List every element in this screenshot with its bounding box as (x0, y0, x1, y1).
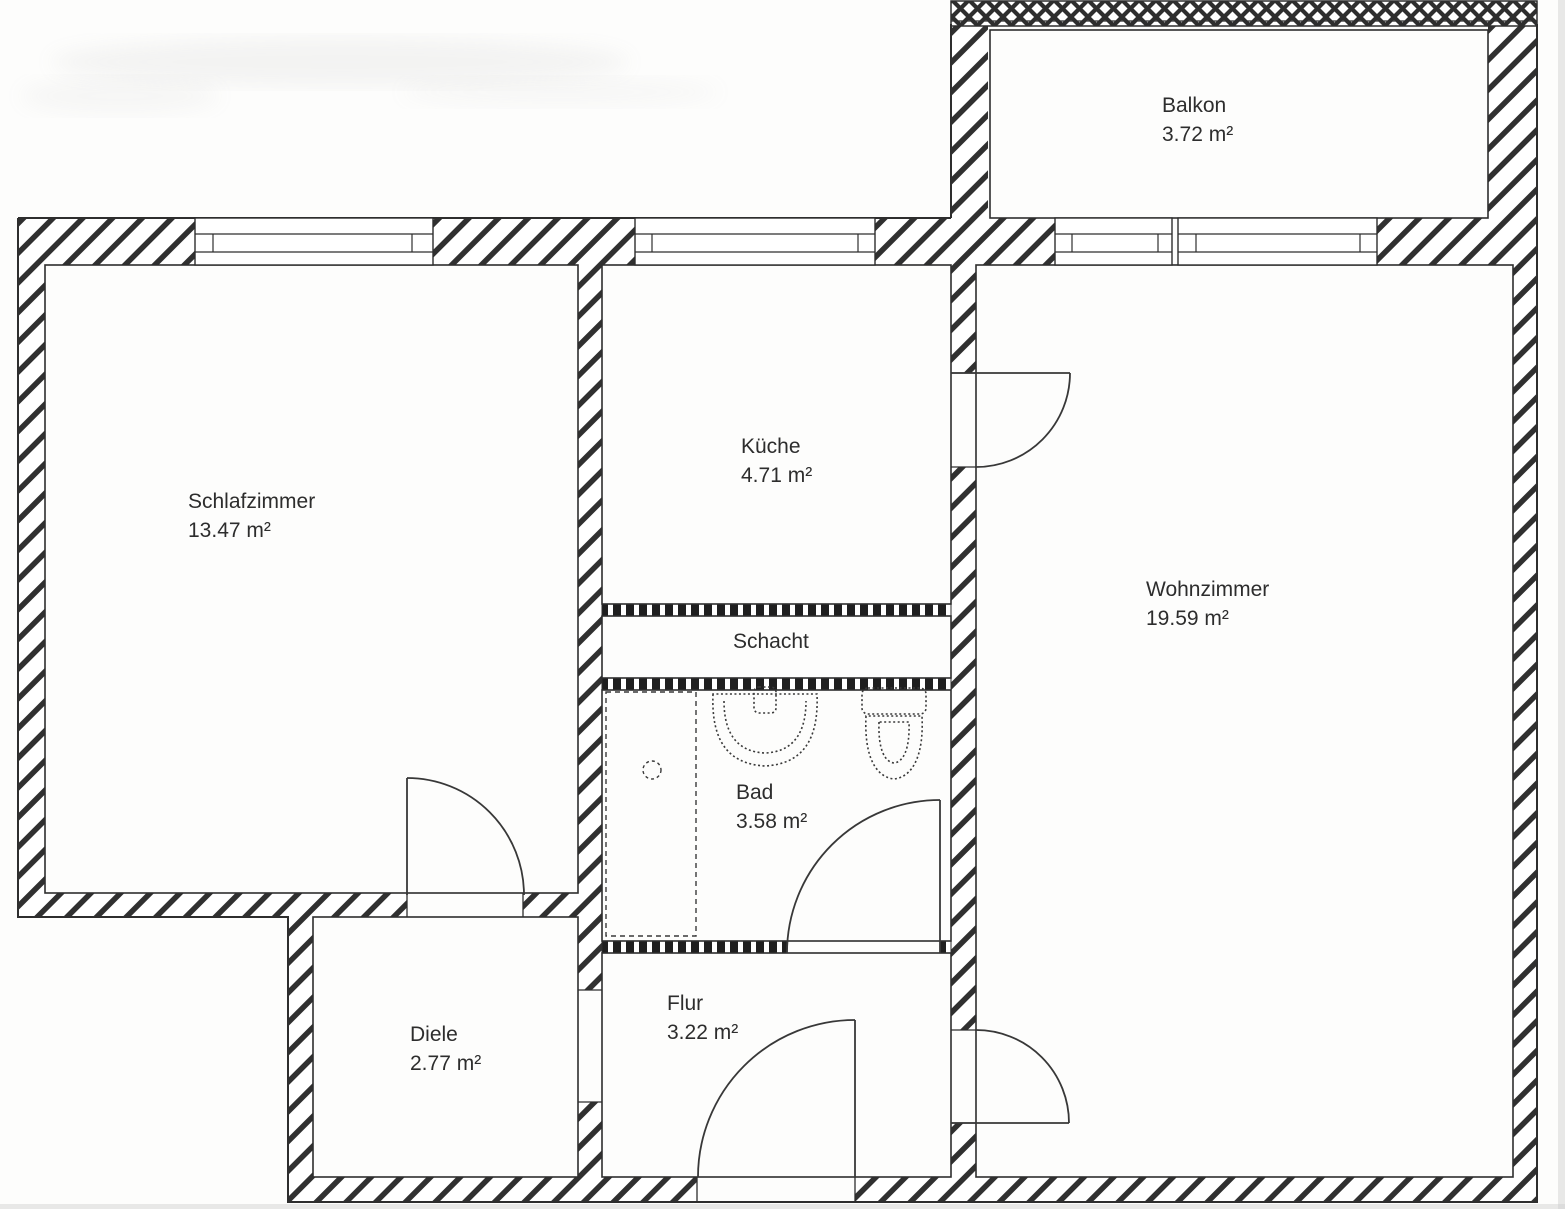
door-schlafzimmer (407, 778, 524, 895)
window-balcony-left (1055, 218, 1172, 265)
wall-segment (433, 218, 635, 265)
wall-segment (288, 1177, 697, 1202)
partition-schacht-top (602, 604, 951, 616)
room-schlafzimmer (45, 265, 578, 893)
partition-walls (602, 604, 951, 953)
room-label-schlafzimmer: Schlafzimmer (188, 490, 315, 513)
room-label-flur: Flur (667, 992, 703, 1015)
wall-segment (578, 1102, 602, 1202)
door-jambs (407, 373, 976, 1202)
floor-plan-svg: Balkon 3.72 m² Schlafzimmer 13.47 m² Küc… (0, 0, 1565, 1209)
shower-drain (643, 761, 661, 779)
door-bad (787, 800, 940, 953)
window-kueche (635, 218, 875, 265)
wall-segment (288, 893, 313, 1202)
room-diele (313, 917, 578, 1177)
room-label-schacht: Schacht (733, 630, 809, 653)
door-kueche-wohnzimmer (951, 373, 1070, 467)
wall-segment (1513, 218, 1537, 1202)
room-label-wohnzimmer: Wohnzimmer (1146, 578, 1269, 601)
window-schlafzimmer (195, 218, 433, 265)
room-area-diele: 2.77 m² (410, 1052, 481, 1075)
shower-tray (606, 692, 696, 936)
room-area-bad: 3.58 m² (736, 810, 807, 833)
toilet (862, 688, 926, 779)
room-wohnzimmer (976, 265, 1513, 1177)
wall-segment (1377, 218, 1513, 265)
wall-segment (951, 1123, 976, 1202)
room-flur (602, 953, 951, 1177)
partition-schacht-bottom (602, 678, 951, 690)
window-balcony-right (1178, 218, 1377, 265)
door-flur-wohnzimmer (951, 1030, 1069, 1123)
room-area-flur: 3.22 m² (667, 1021, 738, 1044)
wall-segment (18, 218, 45, 917)
wall-segment (578, 265, 602, 990)
balcony-slab (990, 30, 1488, 218)
windows (195, 218, 1377, 265)
partition-bad-bottom-left (602, 941, 787, 953)
balcony-railing (951, 1, 1537, 26)
room-outlines (45, 30, 1513, 1177)
wall-segment (951, 22, 988, 218)
room-label-balkon: Balkon (1162, 94, 1226, 117)
room-area-kueche: 4.71 m² (741, 464, 812, 487)
wall-segment (951, 218, 976, 373)
room-label-bad: Bad (736, 781, 773, 804)
wall-segment (951, 467, 976, 1030)
room-label-kueche: Küche (741, 435, 801, 458)
room-area-schlafzimmer: 13.47 m² (188, 519, 271, 542)
room-area-wohnzimmer: 19.59 m² (1146, 607, 1229, 630)
floor-plan-page: Balkon 3.72 m² Schlafzimmer 13.47 m² Küc… (0, 0, 1565, 1209)
wall-segment (18, 893, 407, 917)
room-area-balkon: 3.72 m² (1162, 123, 1233, 146)
partition-bad-bottom-right (940, 941, 951, 953)
washbasin (713, 687, 817, 766)
room-label-diele: Diele (410, 1023, 458, 1046)
wall-segment (1488, 22, 1537, 218)
